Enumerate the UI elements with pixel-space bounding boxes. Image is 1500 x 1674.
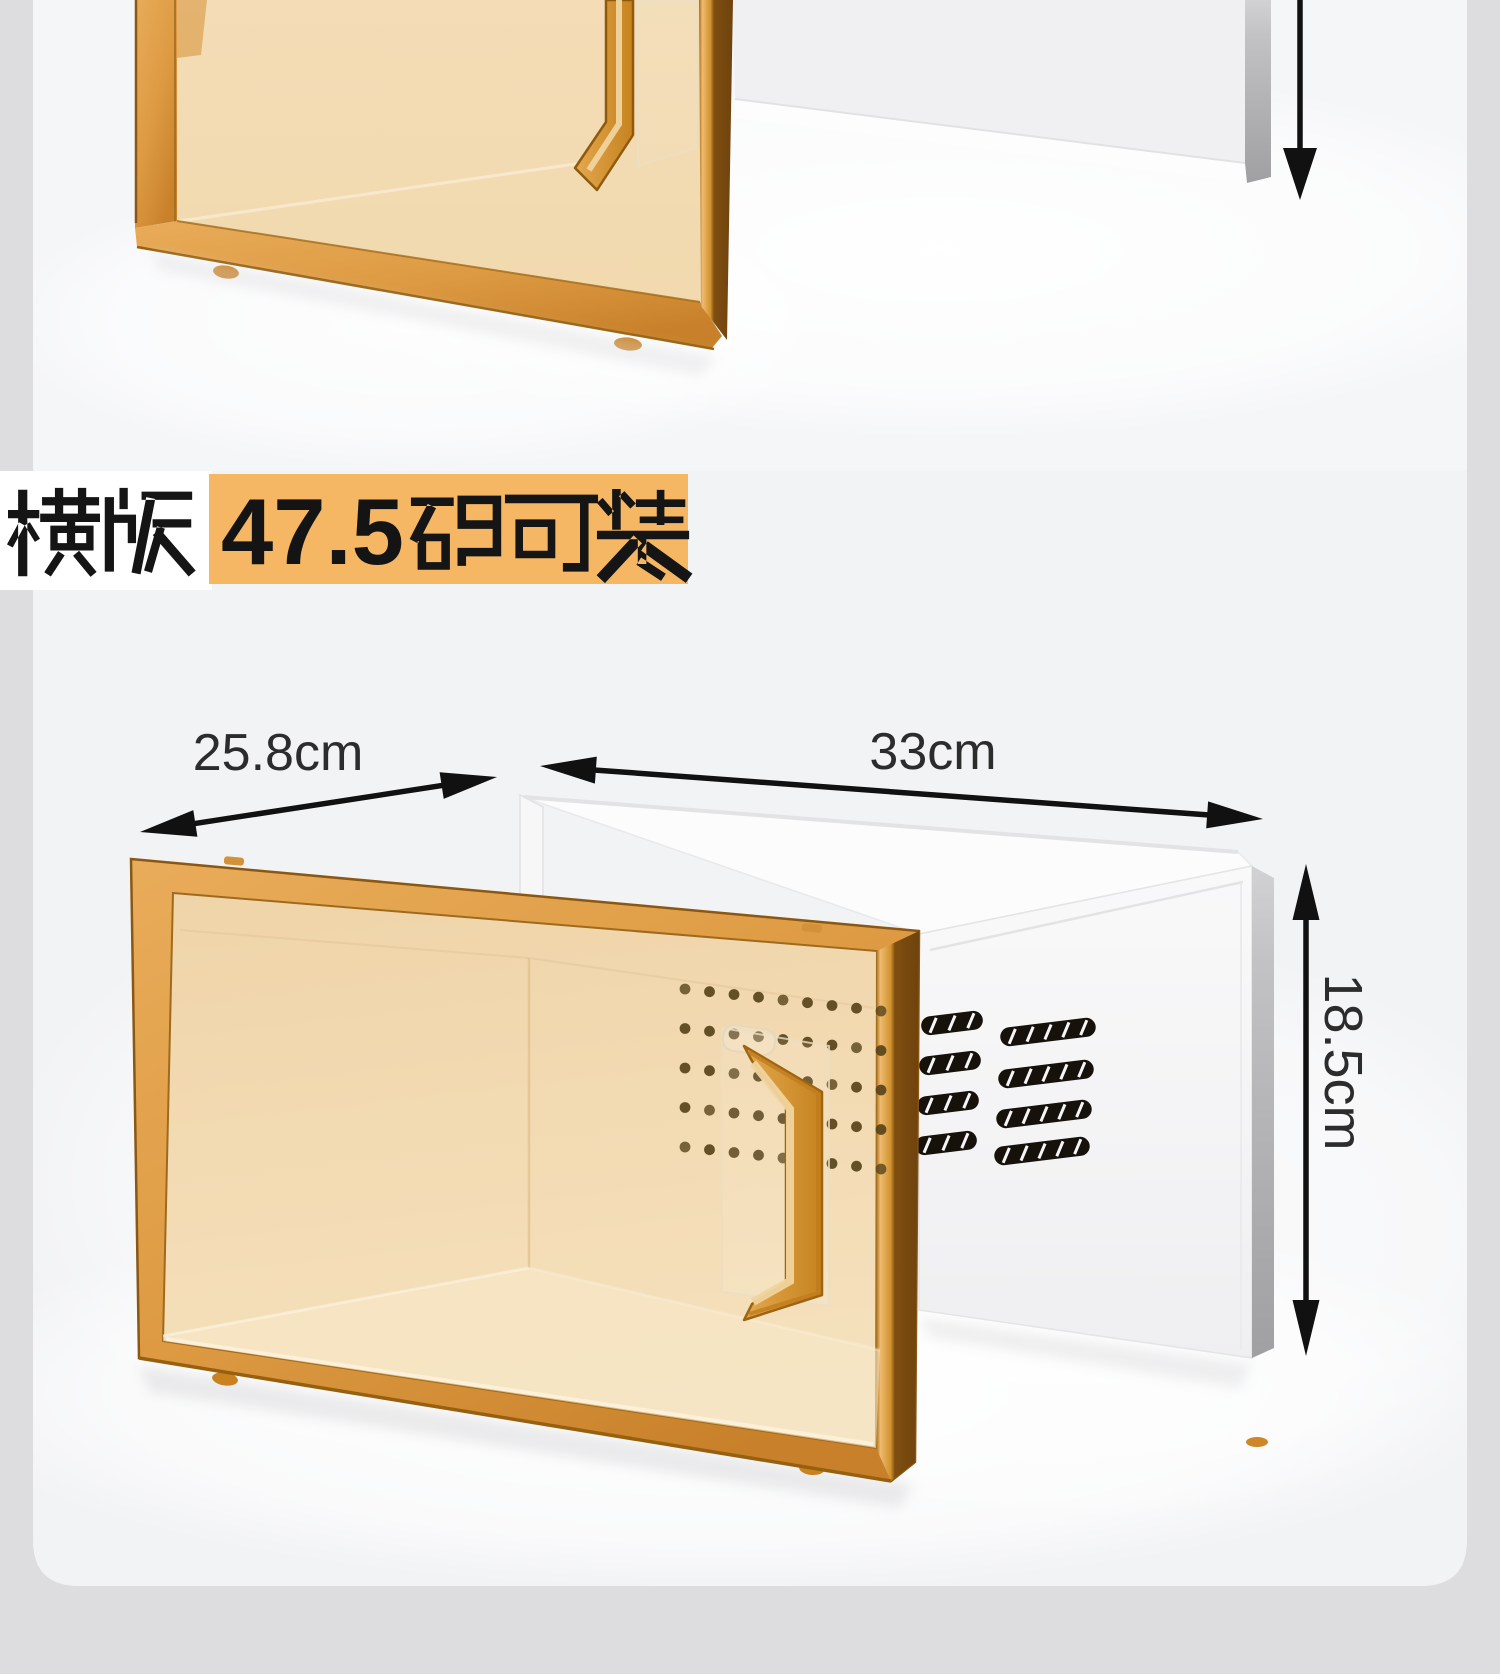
svg-text:47.5: 47.5	[221, 479, 404, 584]
svg-text:33cm: 33cm	[869, 723, 996, 781]
svg-text:18.5cm: 18.5cm	[1313, 973, 1373, 1150]
svg-text:25.8cm: 25.8cm	[193, 724, 364, 782]
